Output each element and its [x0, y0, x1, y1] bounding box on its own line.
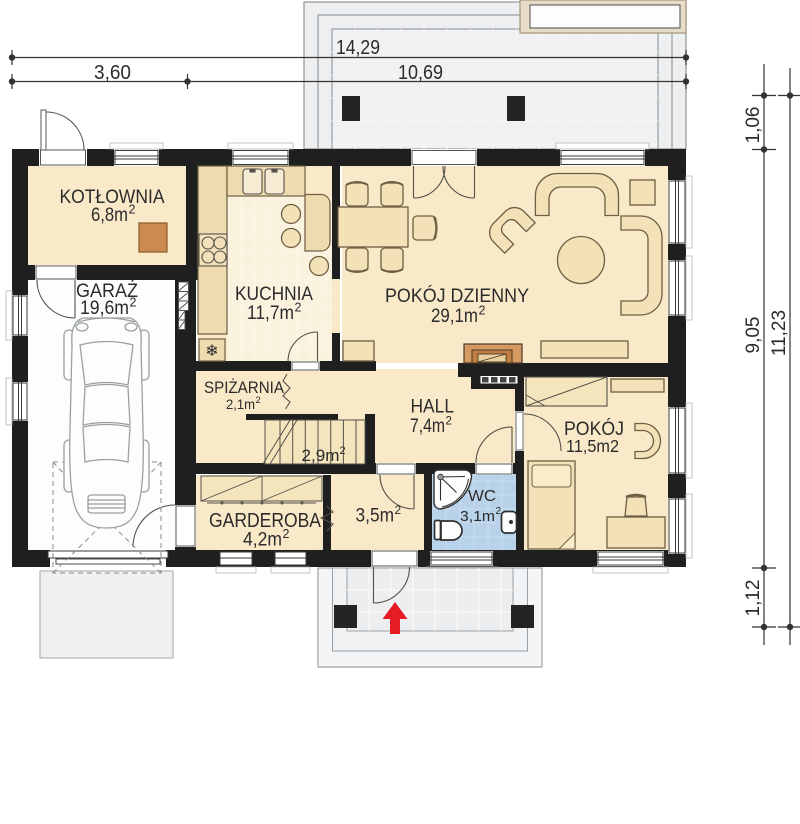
svg-text:3,1m: 3,1m — [460, 508, 495, 525]
svg-text:10,69: 10,69 — [398, 62, 443, 84]
svg-text:2: 2 — [295, 301, 302, 315]
svg-text:HALL: HALL — [411, 396, 455, 418]
svg-text:2,1m: 2,1m — [226, 396, 255, 412]
svg-text:9,05: 9,05 — [743, 317, 764, 354]
svg-text:3,60: 3,60 — [94, 62, 131, 84]
svg-text:29,1m: 29,1m — [431, 305, 478, 327]
svg-text:14,29: 14,29 — [336, 37, 380, 59]
svg-text:2: 2 — [283, 527, 290, 541]
svg-text:3,5m: 3,5m — [356, 506, 395, 527]
svg-text:2: 2 — [130, 296, 137, 310]
svg-text:2: 2 — [395, 503, 402, 517]
svg-text:6,8m: 6,8m — [91, 204, 128, 226]
svg-text:POKÓJ DZIENNY: POKÓJ DZIENNY — [385, 284, 529, 307]
svg-text:2,9m: 2,9m — [302, 446, 340, 465]
svg-text:2: 2 — [446, 416, 452, 428]
svg-text:11,23: 11,23 — [769, 310, 790, 356]
svg-text:7,4m: 7,4m — [410, 416, 445, 437]
svg-text:2: 2 — [129, 203, 136, 217]
svg-text:2: 2 — [496, 506, 502, 517]
svg-text:19,6m: 19,6m — [80, 297, 129, 319]
svg-text:WC: WC — [468, 488, 496, 505]
svg-text:2: 2 — [256, 395, 261, 406]
svg-text:2: 2 — [479, 304, 486, 318]
svg-text:1,06: 1,06 — [743, 107, 764, 144]
svg-text:2: 2 — [340, 445, 346, 457]
svg-text:❄: ❄ — [205, 343, 218, 360]
svg-text:11,7m: 11,7m — [247, 302, 294, 324]
svg-text:4,2m: 4,2m — [243, 529, 282, 551]
svg-text:11,5m2: 11,5m2 — [566, 436, 619, 456]
svg-text:1,12: 1,12 — [743, 580, 764, 617]
svg-text:SPIŻARNIA: SPIŻARNIA — [204, 378, 284, 397]
